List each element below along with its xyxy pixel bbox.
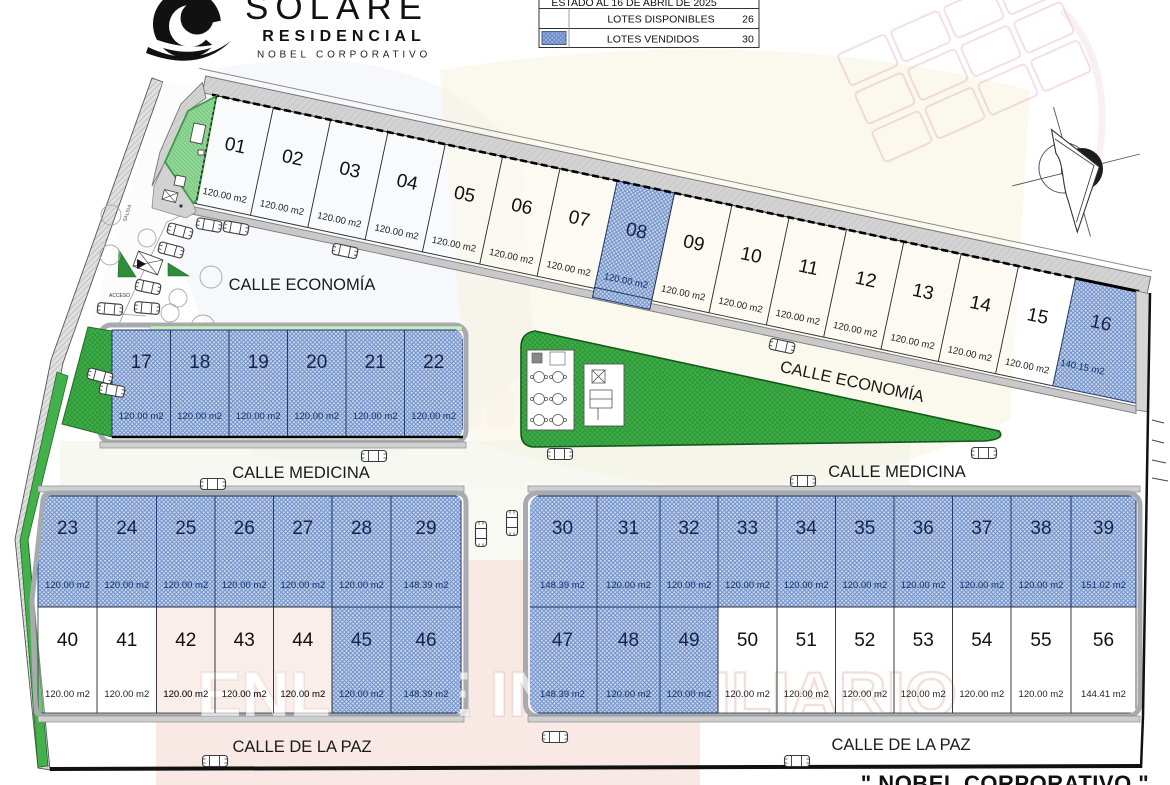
svg-text:46: 46 — [415, 630, 436, 651]
svg-text:50: 50 — [737, 630, 758, 651]
svg-text:56: 56 — [1093, 630, 1114, 651]
svg-text:34: 34 — [796, 518, 818, 539]
svg-text:40: 40 — [57, 630, 78, 651]
svg-text:120.00 m2: 120.00 m2 — [842, 580, 887, 591]
svg-text:28: 28 — [351, 518, 372, 539]
svg-text:144.41 m2: 144.41 m2 — [1081, 689, 1126, 700]
svg-text:41: 41 — [116, 630, 137, 651]
svg-text:30: 30 — [742, 34, 754, 46]
svg-text:27: 27 — [292, 518, 313, 539]
svg-text:32: 32 — [678, 518, 699, 539]
svg-text:LOTES DISPONIBLES: LOTES DISPONIBLES — [607, 14, 714, 26]
svg-text:33: 33 — [737, 518, 758, 539]
svg-text:120.00 m2: 120.00 m2 — [1019, 689, 1064, 700]
svg-text:120.00 m2: 120.00 m2 — [222, 689, 267, 700]
svg-text:31: 31 — [618, 518, 639, 539]
svg-text:120.00 m2: 120.00 m2 — [842, 689, 887, 700]
svg-text:CALLE ECONOMÍA: CALLE ECONOMÍA — [229, 275, 376, 294]
svg-text:120.00 m2: 120.00 m2 — [222, 580, 267, 591]
svg-text:120.00 m2: 120.00 m2 — [667, 580, 712, 591]
svg-text:ACCESO: ACCESO — [109, 293, 130, 299]
svg-text:35: 35 — [854, 518, 875, 539]
svg-text:54: 54 — [971, 630, 993, 651]
svg-text:06: 06 — [509, 195, 534, 220]
svg-text:44: 44 — [292, 630, 314, 651]
svg-text:47: 47 — [552, 630, 573, 651]
svg-text:120.00 m2: 120.00 m2 — [104, 689, 149, 700]
svg-text:09: 09 — [681, 231, 706, 256]
svg-text:10: 10 — [739, 243, 764, 268]
svg-text:05: 05 — [452, 182, 477, 207]
svg-text:120.00 m2: 120.00 m2 — [104, 580, 149, 591]
svg-text:RESIDENCIAL: RESIDENCIAL — [262, 28, 425, 45]
svg-text:20: 20 — [306, 352, 327, 373]
svg-text:120.00 m2: 120.00 m2 — [339, 580, 384, 591]
svg-text:120.00 m2: 120.00 m2 — [163, 689, 208, 700]
svg-text:120.00 m2: 120.00 m2 — [959, 689, 1004, 700]
svg-text:30: 30 — [552, 518, 573, 539]
svg-text:120.00 m2: 120.00 m2 — [411, 411, 456, 422]
svg-text:148.39 m2: 148.39 m2 — [404, 689, 449, 700]
svg-text:42: 42 — [175, 630, 196, 651]
svg-text:25: 25 — [175, 518, 196, 539]
svg-text:55: 55 — [1030, 630, 1051, 651]
svg-text:148.39 m2: 148.39 m2 — [540, 689, 585, 700]
svg-text:39: 39 — [1093, 518, 1114, 539]
svg-text:120.00 m2: 120.00 m2 — [667, 689, 712, 700]
svg-text:120.00 m2: 120.00 m2 — [45, 580, 90, 591]
svg-text:13: 13 — [911, 280, 936, 305]
svg-text:" NOBEL CORPORATIVO ": " NOBEL CORPORATIVO " — [861, 771, 1149, 785]
svg-text:53: 53 — [913, 630, 934, 651]
svg-text:120.00 m2: 120.00 m2 — [294, 411, 339, 422]
svg-text:120.00 m2: 120.00 m2 — [606, 689, 651, 700]
svg-text:07: 07 — [567, 207, 592, 232]
svg-text:12: 12 — [853, 268, 878, 293]
svg-text:26: 26 — [234, 518, 255, 539]
svg-text:120.00 m2: 120.00 m2 — [45, 689, 90, 700]
svg-text:36: 36 — [913, 518, 934, 539]
svg-text:37: 37 — [971, 518, 992, 539]
svg-text:19: 19 — [248, 352, 269, 373]
svg-text:148.39 m2: 148.39 m2 — [540, 580, 585, 591]
svg-text:24: 24 — [116, 518, 138, 539]
svg-text:15: 15 — [1025, 304, 1050, 329]
svg-text:SOLARE: SOLARE — [245, 0, 429, 27]
svg-text:16: 16 — [1088, 311, 1113, 336]
svg-text:48: 48 — [618, 630, 639, 651]
svg-text:45: 45 — [351, 630, 372, 651]
svg-text:29: 29 — [415, 518, 436, 539]
svg-text:120.00 m2: 120.00 m2 — [119, 411, 164, 422]
svg-text:51: 51 — [796, 630, 817, 651]
svg-text:120.00 m2: 120.00 m2 — [353, 411, 398, 422]
svg-text:120.00 m2: 120.00 m2 — [163, 580, 208, 591]
svg-text:22: 22 — [423, 352, 444, 373]
svg-text:08: 08 — [624, 219, 649, 244]
svg-text:148.39 m2: 148.39 m2 — [404, 580, 449, 591]
svg-text:120.00 m2: 120.00 m2 — [725, 689, 770, 700]
svg-text:01: 01 — [223, 134, 248, 159]
svg-text:LOTES VENDIDOS: LOTES VENDIDOS — [607, 34, 699, 46]
svg-text:120.00 m2: 120.00 m2 — [784, 580, 829, 591]
svg-text:03: 03 — [337, 158, 362, 183]
svg-text:151.02 m2: 151.02 m2 — [1081, 580, 1126, 591]
svg-text:120.00 m2: 120.00 m2 — [901, 689, 946, 700]
svg-text:CALLE MEDICINA: CALLE MEDICINA — [828, 463, 966, 481]
svg-text:21: 21 — [365, 352, 386, 373]
svg-text:120.00 m2: 120.00 m2 — [339, 689, 384, 700]
svg-text:02: 02 — [280, 146, 305, 171]
svg-text:CALLE MEDICINA: CALLE MEDICINA — [232, 464, 370, 482]
svg-text:120.00 m2: 120.00 m2 — [280, 580, 325, 591]
svg-text:120.00 m2: 120.00 m2 — [177, 411, 222, 422]
svg-text:120.00 m2: 120.00 m2 — [901, 580, 946, 591]
svg-text:18: 18 — [189, 352, 210, 373]
svg-text:120.00 m2: 120.00 m2 — [236, 411, 281, 422]
svg-text:120.00 m2: 120.00 m2 — [606, 580, 651, 591]
svg-text:52: 52 — [854, 630, 875, 651]
svg-text:17: 17 — [131, 352, 152, 373]
svg-text:CALLE DE LA PAZ: CALLE DE LA PAZ — [232, 738, 371, 756]
svg-text:ESTADO AL 16 DE ABRIL DE 2025: ESTADO AL 16 DE ABRIL DE 2025 — [551, 0, 717, 9]
svg-text:120.00 m2: 120.00 m2 — [959, 580, 1004, 591]
svg-text:NOBEL CORPORATIVO: NOBEL CORPORATIVO — [257, 50, 431, 61]
svg-text:38: 38 — [1030, 518, 1051, 539]
svg-text:120.00 m2: 120.00 m2 — [280, 689, 325, 700]
svg-text:23: 23 — [57, 518, 78, 539]
svg-text:120.00 m2: 120.00 m2 — [1019, 580, 1064, 591]
svg-text:49: 49 — [678, 630, 699, 651]
svg-text:120.00 m2: 120.00 m2 — [725, 580, 770, 591]
svg-text:26: 26 — [742, 14, 754, 26]
svg-text:CALLE DE LA PAZ: CALLE DE LA PAZ — [831, 736, 970, 754]
svg-text:120.00 m2: 120.00 m2 — [784, 689, 829, 700]
svg-text:43: 43 — [234, 630, 255, 651]
